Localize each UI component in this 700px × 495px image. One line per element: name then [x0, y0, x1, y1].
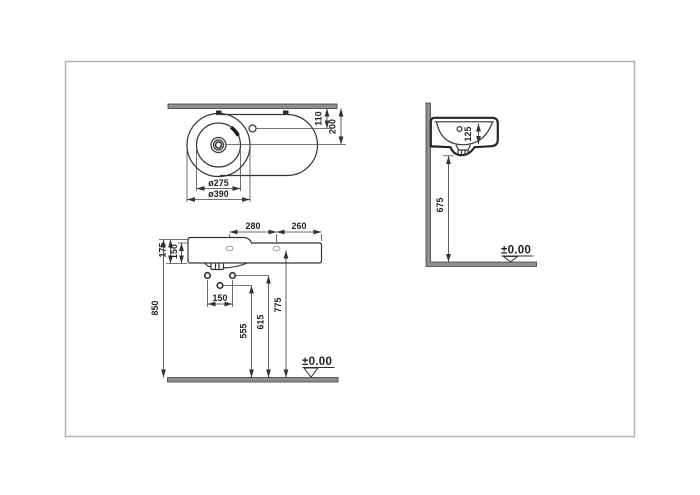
front-view: 280 260 175 150 850 [150, 221, 338, 382]
overflow-mark [231, 127, 238, 136]
level-triangle-front [304, 368, 318, 377]
technical-drawing: 110 200 ø275 ø390 280 260 [0, 0, 700, 495]
dim-label-200: 200 [328, 119, 338, 134]
dim-675: 675 [435, 156, 454, 262]
dim-label-275: ø275 [208, 178, 228, 188]
level-symbol-side: ±0.00 [501, 245, 534, 262]
dim-850: 850 [150, 240, 164, 378]
basin-front-outline [188, 238, 322, 264]
dim-label-110: 110 [314, 111, 324, 126]
level-symbol-front: ±0.00 [302, 356, 335, 377]
dim-275: ø275 [197, 150, 241, 191]
floor-section-front [168, 378, 339, 383]
basin-underside [205, 263, 248, 270]
dim-label-175: 175 [158, 243, 168, 258]
dim-110: 110 [314, 109, 328, 129]
dim-175-150: 175 150 [158, 240, 189, 264]
dim-775: 775 [273, 251, 286, 378]
dim-label-615: 615 [256, 315, 266, 330]
dim-label-150-anchors: 150 [213, 293, 228, 303]
dim-555: 555 [224, 286, 252, 378]
dim-200: 200 [328, 109, 342, 145]
anchor-hole-low [217, 283, 223, 289]
wall-section-plan [168, 104, 337, 109]
anchor-hole-left [205, 273, 211, 279]
dim-label-555: 555 [239, 324, 249, 339]
tap-hole [249, 125, 256, 132]
level-label-front: ±0.00 [302, 356, 332, 368]
dim-label-390: ø390 [208, 189, 228, 199]
dim-label-675: 675 [435, 198, 445, 213]
dim-label-775: 775 [273, 298, 283, 313]
drain-inner [216, 142, 222, 148]
counter-outline [219, 115, 317, 176]
level-label-side: ±0.00 [501, 245, 531, 257]
plan-view: 110 200 ø275 ø390 [168, 104, 346, 202]
side-view: 125 675 ±0.00 [426, 103, 537, 267]
dim-label-260: 260 [292, 221, 307, 231]
drawing-page: 110 200 ø275 ø390 280 260 [0, 0, 700, 495]
anchor-hole-right [230, 273, 236, 279]
dim-label-850: 850 [150, 301, 160, 316]
level-triangle-side [504, 257, 518, 262]
drawing-frame [66, 62, 635, 437]
dim-label-280: 280 [246, 221, 261, 231]
dim-label-125: 125 [463, 127, 473, 142]
dim-label-150-height: 150 [169, 244, 179, 259]
